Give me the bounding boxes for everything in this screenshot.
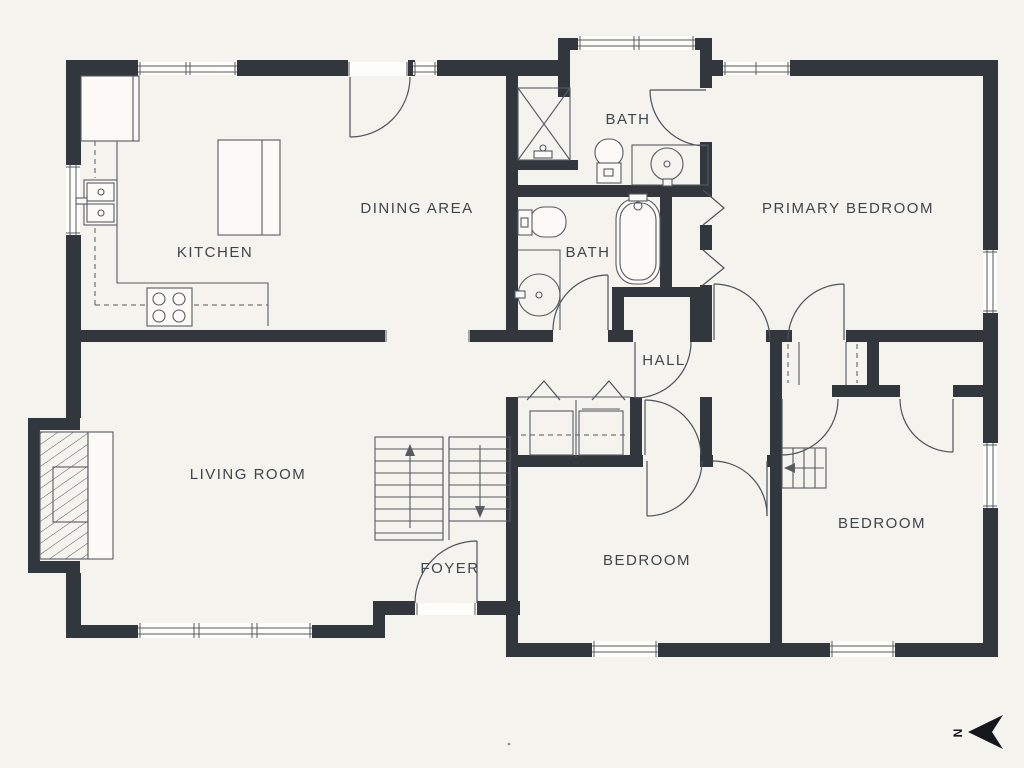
vanity-top-icon [632,145,708,186]
window-primary-right [983,250,997,313]
label-dining-area: DINING AREA [360,200,473,217]
door-dining [348,62,410,137]
floor-plan: KITCHEN DINING AREA BATH BATH PRIMARY BE… [0,0,1024,768]
opening-living-dining [386,330,469,342]
door-hall-closet [635,342,691,398]
primary-closet-rods [788,342,857,385]
stairs-icon [375,437,510,540]
stair-arrow-up [405,444,415,528]
sink-middle-icon [515,250,560,330]
door-vestibule-closet [645,400,701,455]
page-dot [508,743,511,746]
fireplace-icon [40,432,113,559]
door-primary-closet [788,284,844,340]
fixtures [40,76,857,559]
toilet-middle-icon [518,207,566,237]
door-bedroom-center-2 [713,461,767,516]
door-front-entry [415,541,477,615]
label-bath-middle: BATH [566,244,611,261]
window-primary-top [723,62,790,75]
steps-bedroom-right-icon [782,448,826,488]
window-bedroom-right-bottom [830,641,895,657]
label-foyer: FOYER [420,560,479,577]
kitchen-cabinet-icon [81,76,139,141]
label-bedroom-center: BEDROOM [603,552,691,569]
bifold-hall-closets [518,381,630,400]
label-primary-bedroom: PRIMARY BEDROOM [762,200,934,217]
door-bedroom-center-1 [647,461,702,516]
window-bedroom-center-bottom [592,641,658,657]
north-label: N [951,729,965,738]
floor-plan-canvas: KITCHEN DINING AREA BATH BATH PRIMARY BE… [0,0,1024,768]
stove-icon [147,288,192,326]
window-bedroom-right-wall [983,443,997,508]
door-primary-entry [714,284,770,340]
kitchen-island-icon [218,140,280,235]
label-bath-top: BATH [606,111,651,128]
shower-icon [518,88,570,160]
label-hall: HALL [642,352,686,369]
kitchen-sink-icon [76,180,117,225]
label-kitchen: KITCHEN [177,244,253,261]
window-bath-bump [578,36,695,50]
door-bedroom-right-entry [782,399,838,455]
door-bath-top [650,90,706,146]
north-arrow-icon: N [951,715,1003,749]
door-bath-middle [553,275,608,330]
interior-walls [66,76,991,657]
stair-arrow-down [475,445,485,518]
bathtub-icon [616,194,660,284]
stair-treads-left [375,449,443,533]
room-labels: KITCHEN DINING AREA BATH BATH PRIMARY BE… [177,111,934,577]
hall-closet-shelves [521,400,629,457]
label-bedroom-right: BEDROOM [838,515,926,532]
door-bedroom-right-closet [900,399,953,452]
window-kitchen-top [138,62,237,75]
toilet-top-icon [595,139,623,183]
window-dining-top [413,62,437,75]
label-living-room: LIVING ROOM [190,466,307,483]
window-living-room-bottom [138,623,312,638]
